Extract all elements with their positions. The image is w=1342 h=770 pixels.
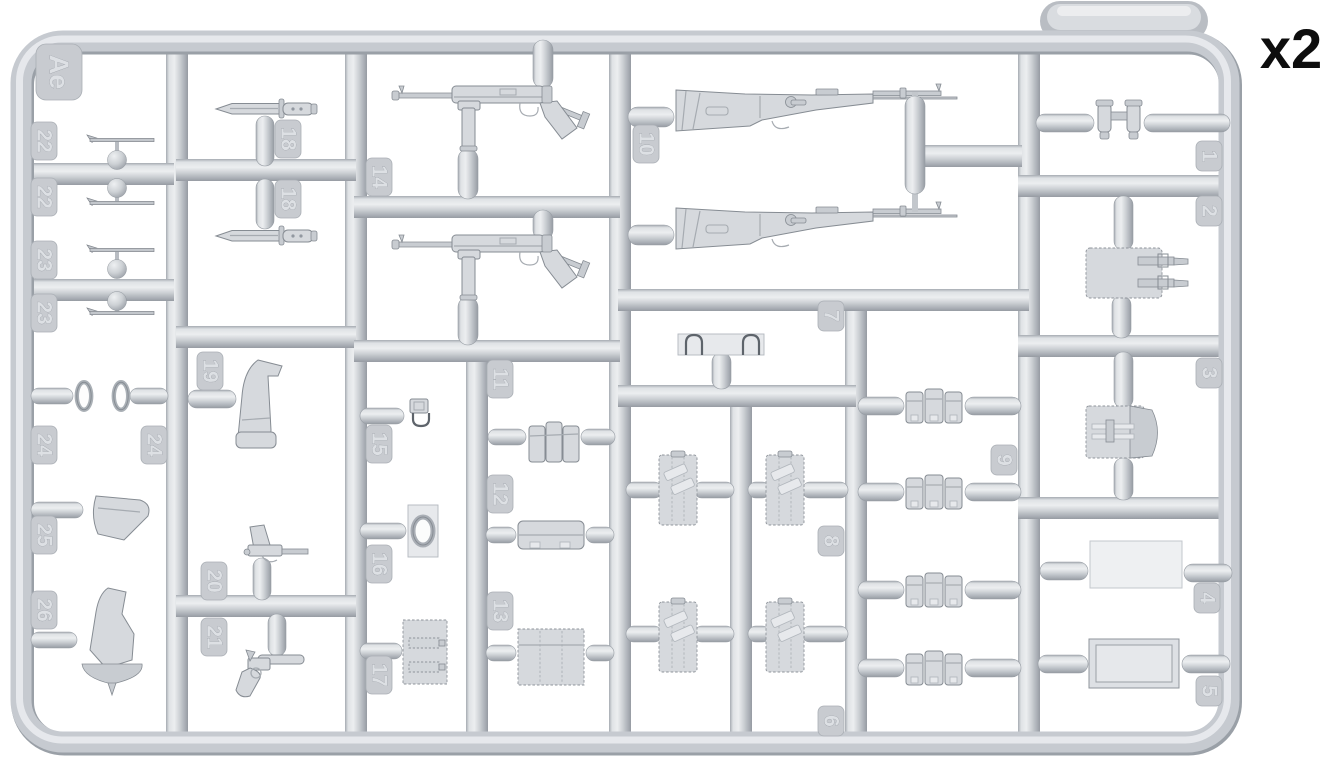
part-tab-9: 9: [991, 445, 1017, 475]
svg-text:5: 5: [1198, 685, 1221, 697]
part-tab-23-a: 23: [31, 241, 57, 279]
sprue-svg: x2: [0, 0, 1342, 770]
svg-text:23: 23: [33, 248, 56, 271]
svg-text:11: 11: [489, 368, 512, 391]
svg-text:22: 22: [33, 185, 56, 208]
part-2-strap-case: [1086, 196, 1188, 338]
part-tab-19: 19: [197, 352, 223, 390]
svg-text:7: 7: [820, 310, 843, 322]
svg-text:14: 14: [368, 165, 391, 189]
part-tab-22-b: 22: [31, 178, 57, 216]
svg-text:17: 17: [368, 663, 391, 686]
part-3-flap-pouch: [1086, 352, 1158, 500]
part-18-bayonet-a: [216, 99, 317, 166]
sprue-handle: [1060, 11, 1188, 21]
part-18-bayonet-b: [216, 179, 317, 245]
part-tab-24-b: 24: [141, 426, 167, 464]
part-tab-2: 2: [1196, 196, 1222, 226]
quantity-label: x2: [1260, 17, 1322, 80]
svg-text:6: 6: [820, 715, 843, 727]
part-tab-8: 8: [818, 526, 844, 556]
svg-text:16: 16: [368, 552, 391, 575]
part-tab-18-b: 18: [275, 180, 301, 218]
svg-text:15: 15: [368, 432, 391, 456]
sprue-code-tab: Ae: [36, 44, 82, 100]
part-14-smg-b: [392, 210, 590, 345]
svg-text:13: 13: [489, 599, 512, 622]
part-tab-22-a: 22: [31, 122, 57, 160]
svg-text:25: 25: [33, 523, 56, 547]
part-tab-15: 15: [366, 425, 392, 463]
part-21-flare-pistol: [236, 614, 304, 697]
part-11-mag-pouch: [488, 422, 615, 462]
svg-text:12: 12: [489, 482, 512, 505]
part-tab-6: 6: [818, 706, 844, 736]
svg-text:26: 26: [33, 598, 56, 621]
part-15-buckle: [360, 399, 429, 426]
svg-text:1: 1: [1198, 150, 1221, 162]
part-tab-17: 17: [366, 656, 392, 694]
part-tab-14: 14: [366, 158, 392, 196]
part-24-lens-rings: [31, 382, 168, 410]
part-tab-20: 20: [201, 562, 227, 600]
svg-text:20: 20: [203, 569, 226, 592]
part-12-flat-case: [486, 521, 614, 549]
svg-text:3: 3: [1198, 367, 1221, 379]
svg-text:18: 18: [277, 187, 300, 211]
part-tab-4: 4: [1194, 583, 1220, 613]
part-tab-11: 11: [487, 360, 513, 398]
svg-text:23: 23: [33, 301, 56, 324]
svg-text:4: 4: [1196, 592, 1219, 604]
part-7-hook-bracket: [678, 334, 764, 389]
part-tab-5: 5: [1196, 676, 1222, 706]
svg-text:24: 24: [143, 433, 166, 457]
part-23-rod-a: [87, 245, 154, 279]
sprue-diagram: x2: [0, 0, 1342, 770]
svg-text:2: 2: [1198, 205, 1221, 217]
svg-text:24: 24: [33, 433, 56, 457]
svg-text:22: 22: [33, 129, 56, 152]
rifle-gate-pillar: [905, 92, 925, 212]
part-10-rifle-b: [628, 202, 957, 249]
part-14-smg-a: [392, 40, 590, 199]
part-tab-26: 26: [31, 591, 57, 629]
part-4-flat-sheet: [1040, 541, 1232, 588]
svg-text:18: 18: [277, 127, 300, 151]
part-tab-24-a: 24: [31, 426, 57, 464]
part-tab-10: 10: [633, 125, 659, 163]
svg-text:21: 21: [203, 625, 226, 649]
part-tab-12: 12: [487, 475, 513, 513]
part-tab-23-b: 23: [31, 294, 57, 332]
part-tab-1: 1: [1196, 141, 1222, 171]
part-tab-18-a: 18: [275, 120, 301, 158]
svg-text:10: 10: [635, 132, 658, 155]
part-tab-3: 3: [1196, 358, 1222, 388]
svg-text:8: 8: [820, 535, 843, 547]
part-tab-16: 16: [366, 545, 392, 583]
svg-text:Ae: Ae: [44, 55, 74, 90]
part-tab-13: 13: [487, 592, 513, 630]
part-tab-21: 21: [201, 618, 227, 656]
part-20-pistol: [244, 525, 308, 600]
svg-text:19: 19: [199, 359, 222, 382]
part-tab-7: 7: [818, 301, 844, 331]
part-tab-25: 25: [31, 516, 57, 554]
svg-text:9: 9: [993, 454, 1016, 466]
part-1-binoculars: [1036, 100, 1230, 139]
part-9-ammo-pouches: [858, 389, 1021, 685]
part-13-mag-pouch: [486, 629, 614, 685]
